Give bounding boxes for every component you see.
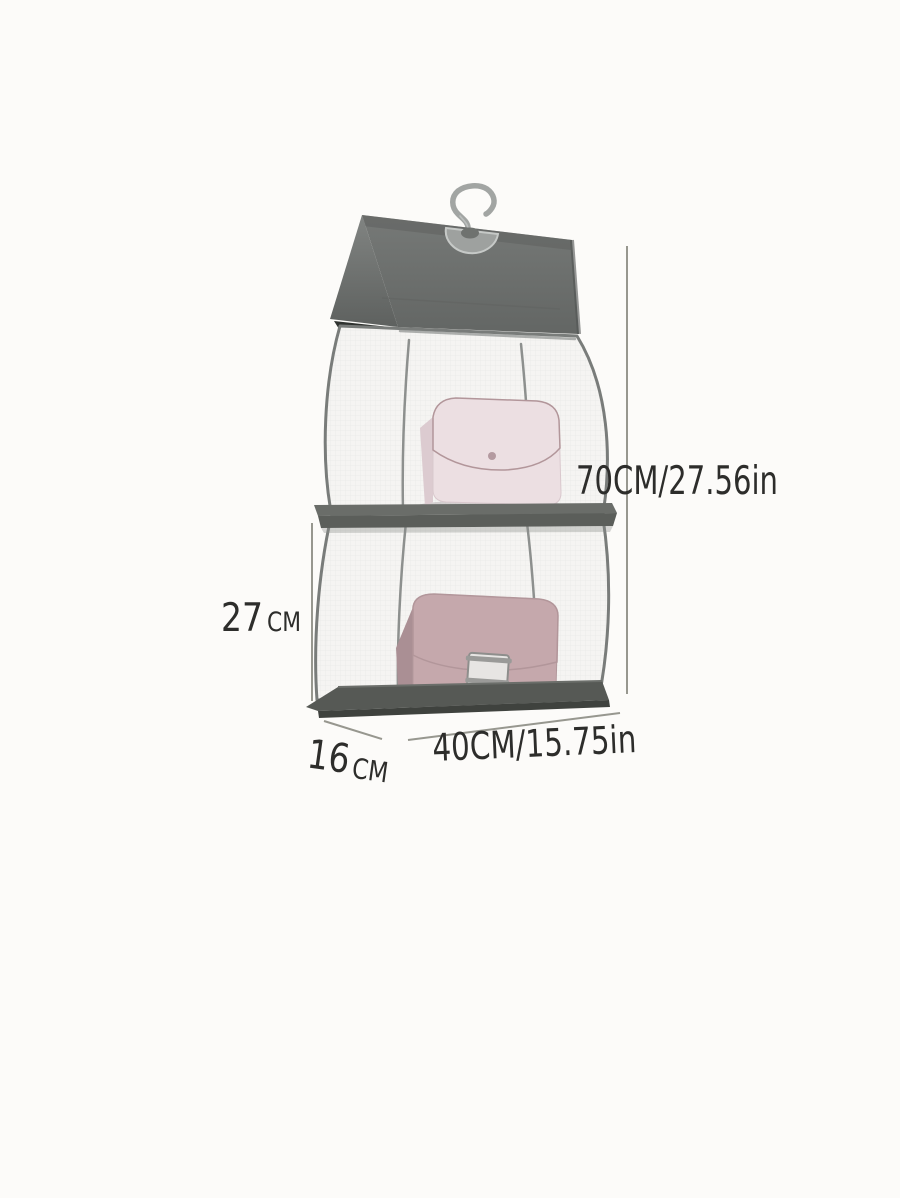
bottom-base <box>306 681 610 718</box>
pink-handbag-top <box>414 398 570 514</box>
middle-shelf <box>314 503 617 533</box>
height-dimension-label: 70CM/27.56in <box>576 459 778 504</box>
depth-value: 16 <box>305 732 353 783</box>
product-photo: 70CM/27.56in 27 CM 16 CM 40CM/15.75in <box>0 0 900 1198</box>
product-dimension-image: 70CM/27.56in 27 CM 16 CM 40CM/15.75in <box>0 0 900 1198</box>
depth-unit: CM <box>350 752 390 790</box>
handbag-top-button <box>488 452 496 460</box>
compartment-height-value: 27 <box>221 596 263 641</box>
compartment-height-unit: CM <box>267 607 301 638</box>
width-dimension-label: 40CM/15.75in <box>431 717 637 770</box>
top-cover <box>330 215 579 335</box>
